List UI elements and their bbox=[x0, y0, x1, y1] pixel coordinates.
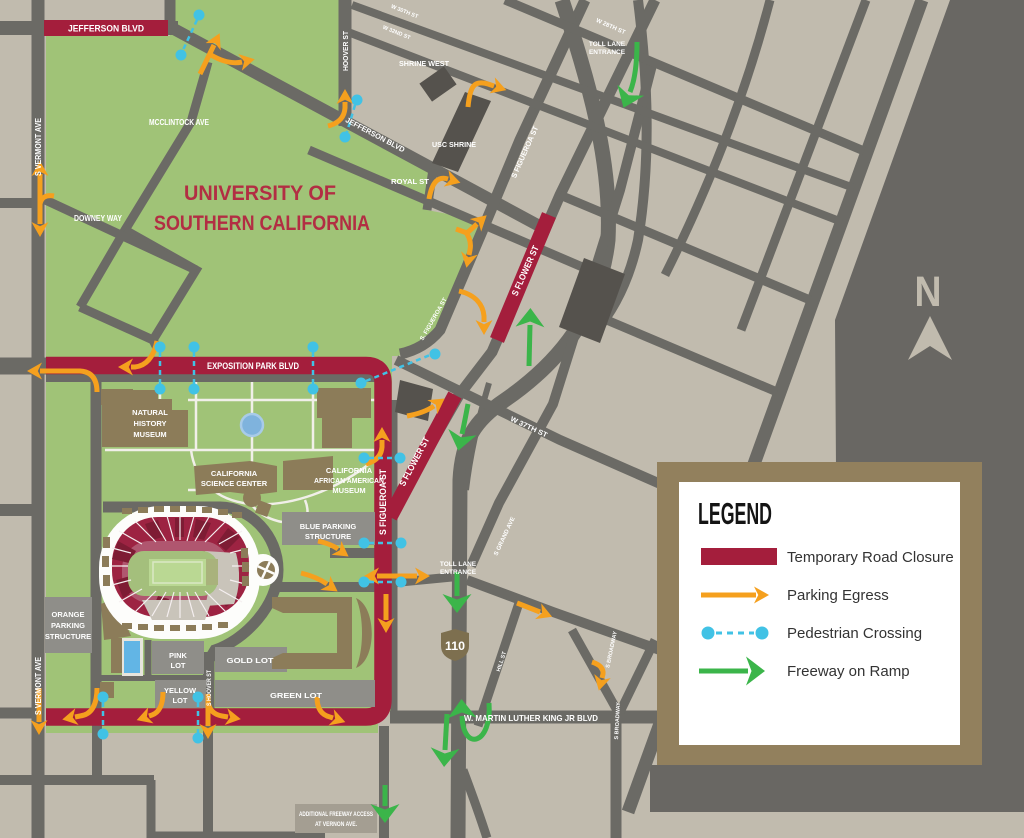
svg-text:TOLL LANE: TOLL LANE bbox=[589, 41, 626, 48]
svg-text:SCIENCE CENTER: SCIENCE CENTER bbox=[201, 479, 268, 488]
svg-text:EXPOSITION PARK BLVD: EXPOSITION PARK BLVD bbox=[207, 361, 299, 371]
svg-text:BLUE PARKING: BLUE PARKING bbox=[300, 522, 357, 531]
svg-text:JEFFERSON BLVD: JEFFERSON BLVD bbox=[68, 24, 144, 35]
svg-text:SOUTHERN CALIFORNIA: SOUTHERN CALIFORNIA bbox=[154, 212, 370, 235]
svg-text:STRUCTURE: STRUCTURE bbox=[305, 532, 351, 541]
svg-text:UNIVERSITY OF: UNIVERSITY OF bbox=[184, 182, 336, 205]
svg-text:ROYAL ST: ROYAL ST bbox=[391, 177, 429, 186]
svg-text:CALIFORNIA: CALIFORNIA bbox=[211, 469, 258, 478]
svg-text:LOT: LOT bbox=[173, 696, 188, 705]
svg-text:ORANGE: ORANGE bbox=[52, 610, 85, 619]
svg-text:PINK: PINK bbox=[169, 651, 188, 660]
svg-text:DOWNEY WAY: DOWNEY WAY bbox=[74, 214, 123, 223]
svg-text:Temporary Road Closure: Temporary Road Closure bbox=[787, 549, 954, 566]
svg-text:ENTRANCE: ENTRANCE bbox=[440, 569, 477, 576]
svg-text:LEGEND: LEGEND bbox=[698, 496, 772, 531]
svg-text:GREEN LOT: GREEN LOT bbox=[270, 691, 322, 700]
svg-text:AFRICAN AMERICAN: AFRICAN AMERICAN bbox=[314, 476, 384, 485]
svg-text:NATURAL: NATURAL bbox=[132, 408, 168, 417]
svg-text:ENTRANCE: ENTRANCE bbox=[589, 49, 626, 56]
svg-text:CALIFORNIA: CALIFORNIA bbox=[326, 466, 373, 475]
svg-text:HISTORY: HISTORY bbox=[134, 419, 167, 428]
svg-text:SHRINE WEST: SHRINE WEST bbox=[399, 59, 449, 68]
svg-text:LOT: LOT bbox=[171, 661, 186, 670]
svg-text:ADDITIONAL FREEWAY ACCESS: ADDITIONAL FREEWAY ACCESS bbox=[299, 811, 373, 818]
svg-text:MUSEUM: MUSEUM bbox=[332, 486, 365, 495]
svg-text:W. MARTIN LUTHER KING JR BLVD: W. MARTIN LUTHER KING JR BLVD bbox=[464, 713, 598, 723]
svg-text:Parking Egress: Parking Egress bbox=[787, 587, 889, 604]
svg-text:Pedestrian Crossing: Pedestrian Crossing bbox=[787, 625, 922, 642]
svg-text:HOOVER ST: HOOVER ST bbox=[343, 30, 350, 71]
svg-text:YELLOW: YELLOW bbox=[164, 686, 197, 695]
svg-text:PARKING: PARKING bbox=[51, 621, 85, 630]
svg-text:S HOOVER ST: S HOOVER ST bbox=[207, 670, 213, 706]
svg-text:AT VERNON AVE.: AT VERNON AVE. bbox=[315, 821, 357, 828]
svg-text:GOLD LOT: GOLD LOT bbox=[227, 656, 275, 665]
svg-text:MUSEUM: MUSEUM bbox=[133, 430, 166, 439]
svg-text:STRUCTURE: STRUCTURE bbox=[45, 632, 91, 641]
svg-text:Freeway on Ramp: Freeway on Ramp bbox=[787, 663, 910, 680]
svg-text:S VERMONT AVE: S VERMONT AVE bbox=[34, 656, 43, 715]
svg-text:TOLL LANE: TOLL LANE bbox=[440, 561, 477, 568]
svg-text:USC SHRINE: USC SHRINE bbox=[432, 140, 476, 149]
svg-text:110: 110 bbox=[445, 639, 465, 653]
svg-text:N: N bbox=[915, 268, 942, 316]
svg-text:MCCLINTOCK AVE: MCCLINTOCK AVE bbox=[149, 118, 210, 127]
svg-text:S VERMONT AVE: S VERMONT AVE bbox=[34, 117, 43, 176]
